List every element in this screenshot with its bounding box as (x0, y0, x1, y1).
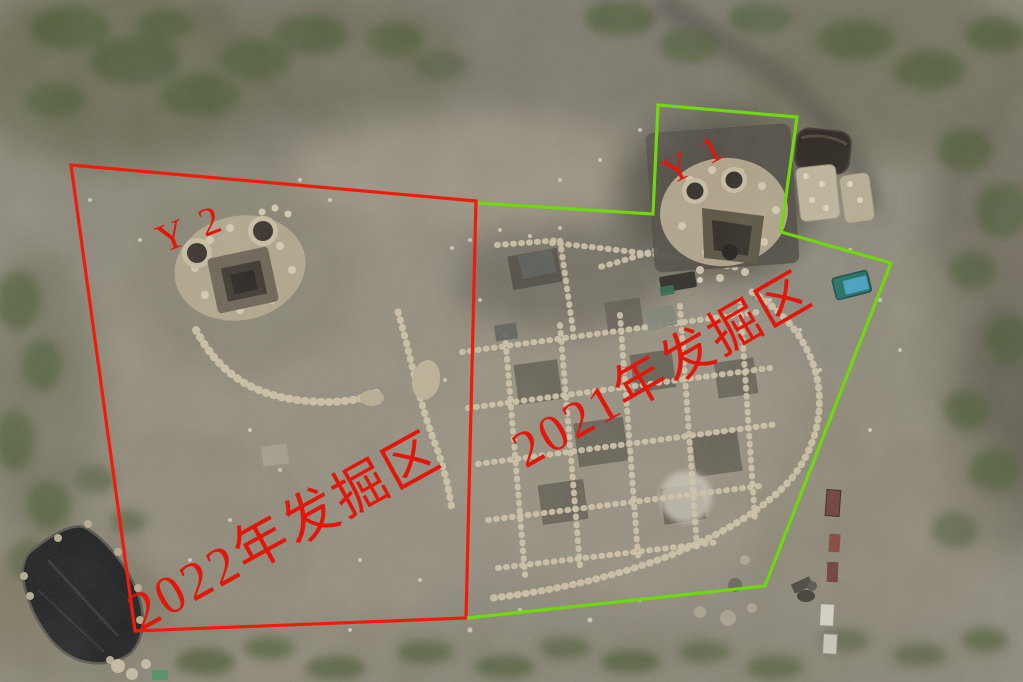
aerial-photo: Y 2 Y 1 2022年发掘区 2021年发掘区 (0, 0, 1023, 682)
